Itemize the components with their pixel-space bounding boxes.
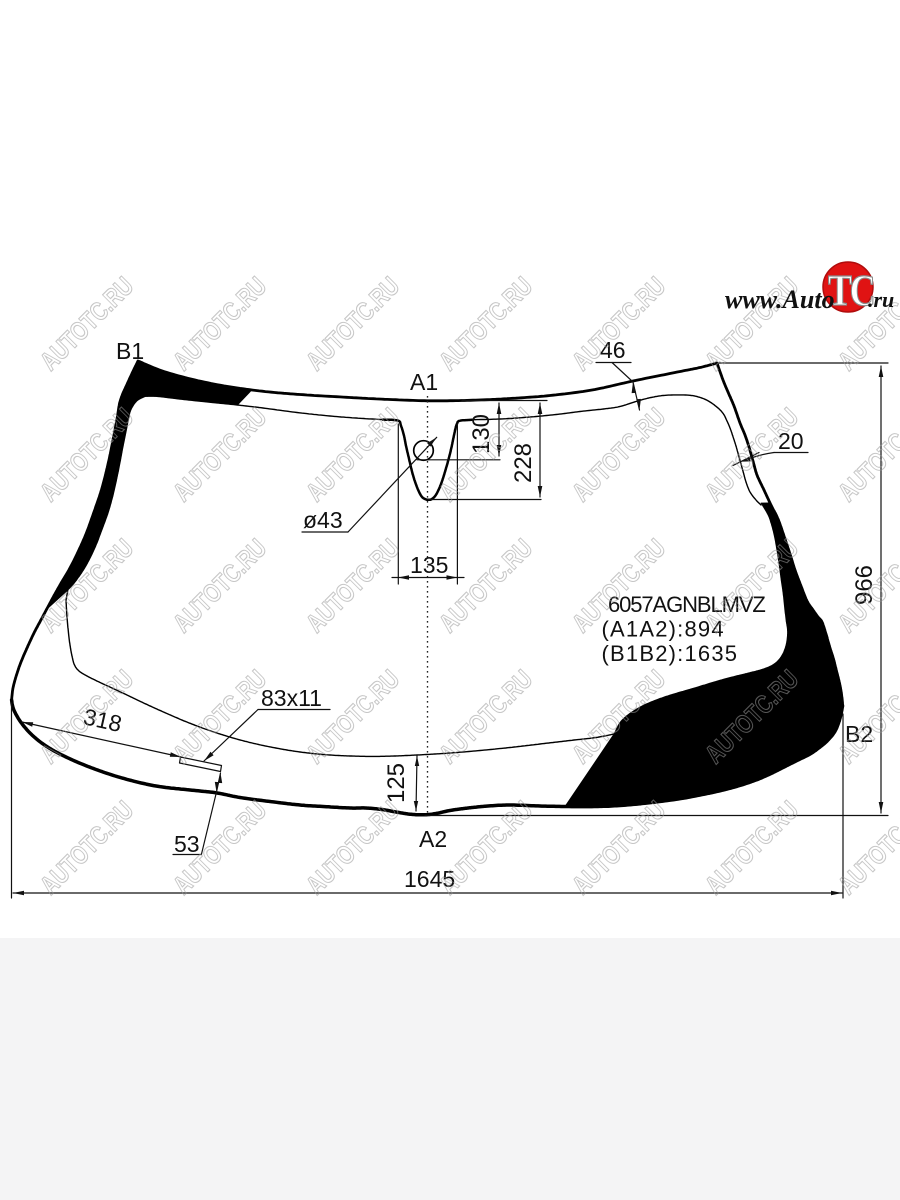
- svg-text:.ru: .ru: [868, 287, 894, 312]
- svg-text:A2: A2: [419, 826, 447, 852]
- svg-text:B1: B1: [116, 338, 144, 364]
- svg-text:TC: TC: [828, 266, 873, 315]
- svg-text:228: 228: [510, 443, 537, 483]
- svg-text:(B1B2):1635: (B1B2):1635: [602, 641, 739, 666]
- svg-text:www.Auto: www.Auto: [725, 285, 835, 314]
- svg-text:A1: A1: [410, 369, 438, 395]
- svg-text:135: 135: [410, 552, 448, 578]
- svg-text:ø43: ø43: [303, 507, 343, 533]
- svg-text:83x11: 83x11: [261, 685, 322, 711]
- svg-text:125: 125: [383, 763, 410, 803]
